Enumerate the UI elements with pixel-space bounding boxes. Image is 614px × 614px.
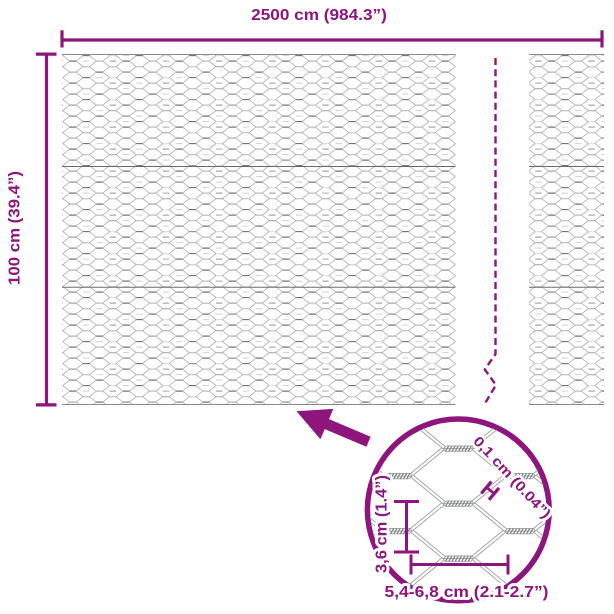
svg-text:2500 cm (984.3”): 2500 cm (984.3”): [251, 7, 387, 24]
svg-text:100 cm (39.4”): 100 cm (39.4”): [7, 171, 24, 285]
svg-text:3,6 cm (1.4”): 3,6 cm (1.4”): [373, 475, 390, 573]
svg-text:5,4-6,8 cm (2.1-2.7”): 5,4-6,8 cm (2.1-2.7”): [385, 584, 549, 601]
